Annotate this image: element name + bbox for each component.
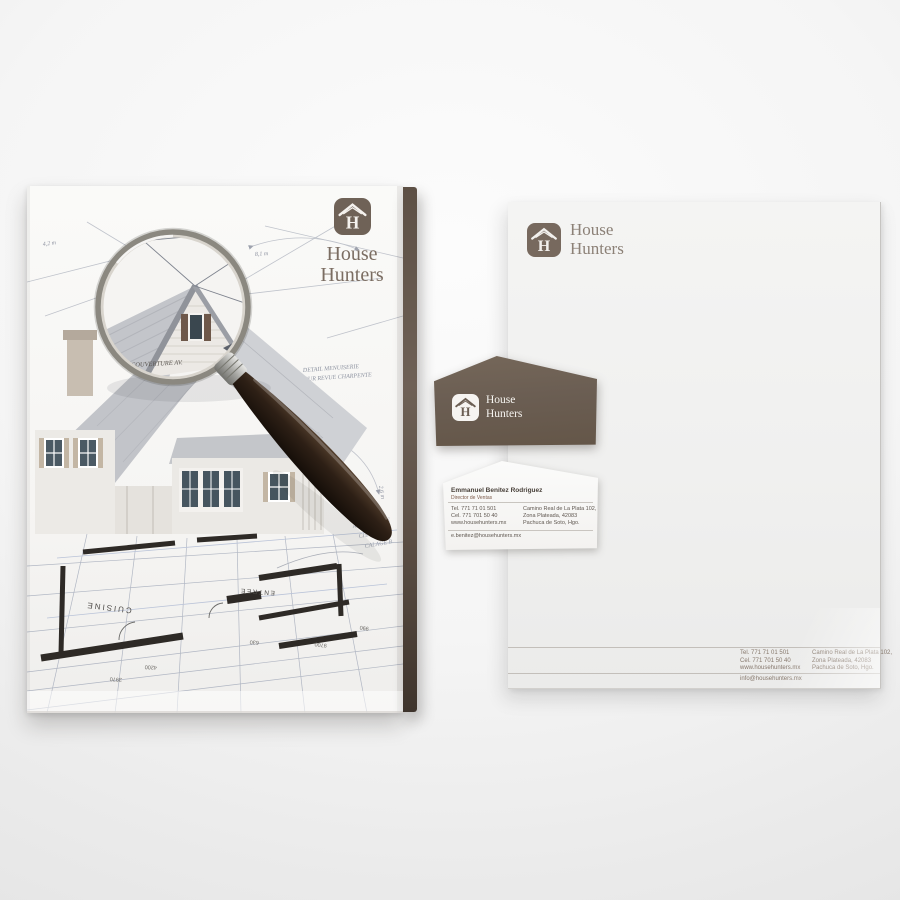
letterhead-tel: Tel. 771 71 01 501 bbox=[740, 650, 800, 658]
card-address2: Zona Plateada, 42083 bbox=[523, 513, 596, 520]
svg-text:H: H bbox=[538, 238, 551, 255]
business-card-back-face: Emmanuel Benitez Rodriguez Director de V… bbox=[443, 461, 598, 550]
svg-text:H: H bbox=[461, 405, 471, 419]
letterhead-contact-address: Camino Real de La Plata 102, Zona Platea… bbox=[812, 650, 892, 673]
card-contact-address: Camino Real de La Plata 102, Zona Platea… bbox=[523, 506, 596, 527]
house-icon-glyph: H bbox=[527, 223, 561, 257]
letterhead-address3: Pachuca de Soto, Hgo. bbox=[812, 665, 892, 673]
house-icon: H bbox=[527, 223, 561, 257]
shuttered-window bbox=[73, 438, 103, 468]
letterhead-logo: H House Hunters bbox=[527, 221, 624, 258]
card-email: e.benitez@househunters.mx bbox=[451, 533, 521, 539]
footer-rule-top bbox=[508, 647, 880, 648]
letterhead-email: info@househunters.mx bbox=[740, 676, 802, 682]
card-person-title: Director de Ventas bbox=[451, 495, 492, 501]
business-card-front: H House Hunters bbox=[434, 356, 597, 446]
letterhead-contact-phone: Tel. 771 71 01 501 Cel. 771 701 50 40 ww… bbox=[740, 650, 800, 673]
house-icon: H bbox=[452, 394, 479, 421]
svg-text:4200: 4200 bbox=[145, 663, 158, 670]
business-card-back: Emmanuel Benitez Rodriguez Director de V… bbox=[443, 461, 598, 550]
svg-text:630: 630 bbox=[250, 638, 260, 645]
house-icon-glyph: H bbox=[334, 198, 371, 235]
brand-name-line1: House bbox=[292, 244, 412, 265]
brand-name-line1: House bbox=[486, 394, 522, 407]
letterhead-address2: Zona Plateada, 42083 bbox=[812, 658, 892, 666]
brand-name-line2: Hunters bbox=[486, 408, 522, 421]
card-rule-top bbox=[448, 502, 593, 503]
svg-text:3970: 3970 bbox=[110, 675, 123, 682]
house-icon: H bbox=[334, 198, 371, 235]
svg-text:H: H bbox=[345, 212, 359, 232]
mockup-stage: DETAIL MENUISERIE SUR REVUE CHARPENTE AL… bbox=[0, 0, 900, 900]
letterhead-address1: Camino Real de La Plata 102, bbox=[812, 650, 892, 658]
letterhead-cel: Cel. 771 701 50 40 bbox=[740, 658, 800, 666]
card-rule-bottom bbox=[448, 530, 593, 531]
cover-logo: H House Hunters bbox=[292, 198, 412, 286]
letterhead-website: www.househunters.mx bbox=[740, 665, 800, 673]
folder-spine bbox=[403, 187, 417, 712]
card-contact-phone: Tel. 771 71 01 501 Cel. 771 701 50 40 ww… bbox=[451, 506, 506, 527]
footer-rule-bottom bbox=[508, 673, 880, 674]
card-tel: Tel. 771 71 01 501 bbox=[451, 506, 506, 513]
card-logo: H House Hunters bbox=[452, 394, 522, 421]
svg-text:990: 990 bbox=[359, 624, 369, 631]
house-icon-glyph: H bbox=[452, 394, 479, 421]
shuttered-window bbox=[39, 438, 69, 468]
brand-name-line2: Hunters bbox=[292, 265, 412, 286]
brand-wordmark: House Hunters bbox=[292, 244, 412, 286]
card-address3: Pachuca de Soto, Hgo. bbox=[523, 520, 596, 527]
card-person-name: Emmanuel Benitez Rodriguez bbox=[451, 487, 542, 494]
chimney bbox=[67, 336, 93, 396]
brand-wordmark: House Hunters bbox=[570, 221, 624, 258]
card-website: www.househunters.mx bbox=[451, 520, 506, 527]
svg-text:8,1 m: 8,1 m bbox=[255, 251, 269, 258]
presentation-folder: DETAIL MENUISERIE SUR REVUE CHARPENTE AL… bbox=[27, 186, 403, 713]
card-address1: Camino Real de La Plata 102, bbox=[523, 506, 596, 513]
brand-name-line2: Hunters bbox=[570, 240, 624, 259]
gable-window bbox=[181, 313, 211, 341]
bay-window bbox=[179, 468, 243, 512]
brand-wordmark: House Hunters bbox=[486, 394, 522, 420]
brand-name-line1: House bbox=[570, 221, 624, 240]
card-cel: Cel. 771 701 50 40 bbox=[451, 513, 506, 520]
business-card-front-face: H House Hunters bbox=[434, 356, 597, 446]
